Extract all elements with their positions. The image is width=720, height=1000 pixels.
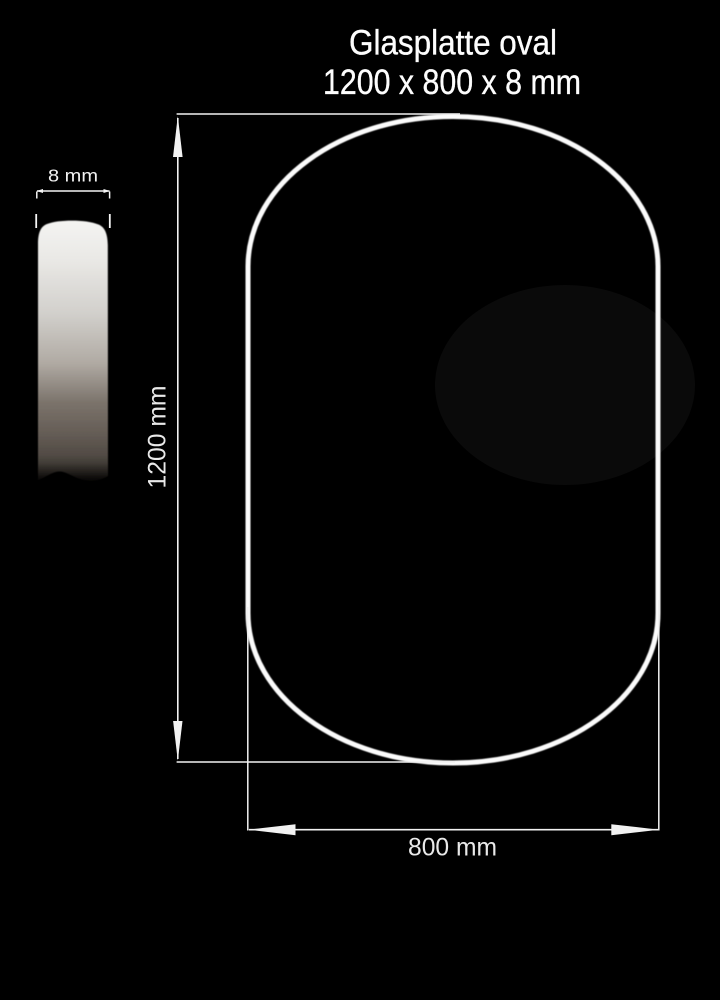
svg-text:1200 x 800 x 8 mm: 1200 x 800 x 8 mm <box>323 63 581 102</box>
svg-text:1200 mm: 1200 mm <box>144 386 172 489</box>
svg-text:Glasplatte oval: Glasplatte oval <box>349 24 557 63</box>
svg-text:8 mm: 8 mm <box>48 166 98 186</box>
svg-text:800 mm: 800 mm <box>408 834 497 862</box>
